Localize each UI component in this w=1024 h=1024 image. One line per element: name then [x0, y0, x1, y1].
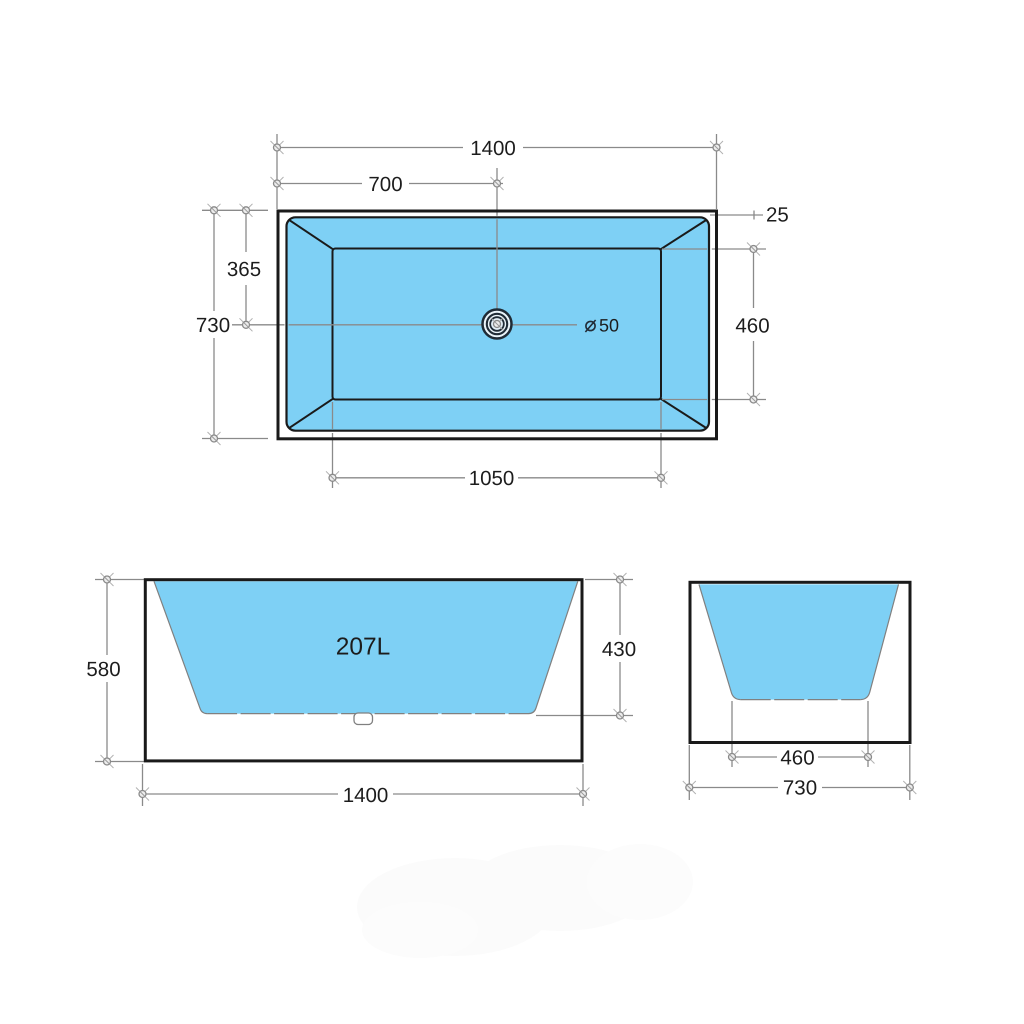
svg-text:25: 25: [766, 203, 789, 226]
svg-text:700: 700: [368, 173, 402, 196]
svg-text:365: 365: [227, 258, 261, 281]
svg-text:50: 50: [599, 316, 619, 336]
svg-text:730: 730: [783, 777, 817, 800]
svg-text:460: 460: [780, 746, 814, 769]
svg-text:430: 430: [602, 638, 636, 661]
svg-text:207L: 207L: [336, 634, 391, 661]
svg-text:580: 580: [86, 658, 120, 681]
svg-text:460: 460: [735, 314, 769, 337]
svg-text:1050: 1050: [469, 467, 515, 490]
svg-text:1400: 1400: [343, 784, 389, 807]
svg-text:1400: 1400: [470, 137, 516, 160]
svg-text:730: 730: [196, 314, 230, 337]
